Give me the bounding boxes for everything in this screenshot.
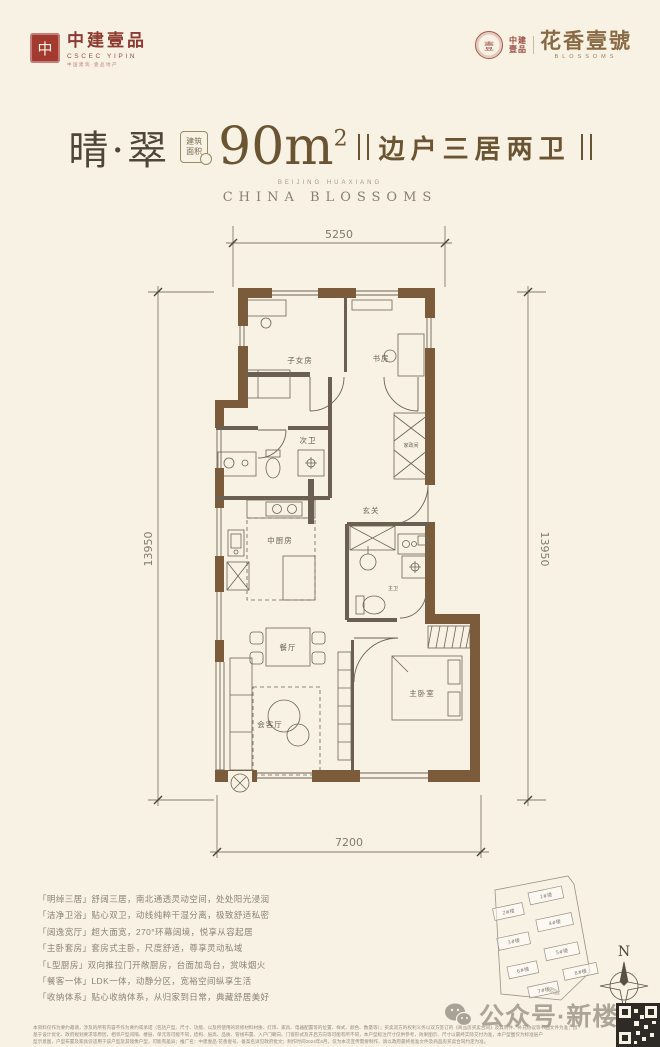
double-bar-icon (581, 134, 592, 160)
blossoms-logo: 壹 中建 壹品 花香壹號 BLOSSOMS (475, 30, 632, 60)
room-label-study: 书房 (373, 353, 390, 363)
right-brand-bottom: 壹品 (509, 45, 527, 54)
project-name-en: BLOSSOMS (540, 54, 632, 60)
dim-bottom: 7200 (335, 836, 363, 849)
dim-top: 5250 (325, 228, 353, 241)
room-label-kitchen: 中厨房 (267, 535, 293, 545)
north-label: N (618, 944, 630, 960)
room-label-bath2: 次卫 (300, 435, 317, 445)
site-buildings: 2#楼 1#楼 3#楼 4#楼 6#楼 5#楼 7#楼 8#楼 (489, 882, 600, 1002)
plan-windows (216, 291, 431, 778)
area-value: 90m (218, 117, 333, 177)
wechat-icon (443, 1000, 473, 1030)
room-label-master-bath: 主卫 (388, 585, 398, 592)
right-brand-top: 中建 (509, 36, 527, 45)
subtitle-small-en: BEIJING HUAXIANG (0, 180, 660, 186)
left-brand-sub: CSCEC YIPIN (67, 53, 147, 60)
plan-walls (215, 288, 480, 782)
watermark: 公众号·新楼市 (443, 997, 644, 1033)
red-seal-icon: 中 (30, 33, 60, 63)
room-label-children: 子女房 (287, 355, 313, 365)
feature-item: 「收纳体系」贴心收纳体系，从归家到日常，典藏舒居美好 (38, 989, 269, 1005)
left-brand-tagline: 中国建筑·壹品地产 (67, 62, 147, 68)
area-badge: 建筑 面积 (180, 131, 208, 163)
feature-item: 「明绰三居」舒阔三居，南北通透灵动空间，处处阳光浸润 (38, 891, 269, 907)
subtitle-en: CHINA BLOSSOMS (0, 190, 660, 205)
dim-right: 13950 (538, 532, 550, 567)
room-label-foyer: 玄关 (363, 505, 380, 515)
area-badge-top: 建筑 (186, 137, 202, 147)
dim-left: 13950 (142, 532, 155, 567)
seal-glyph: 壹 (484, 38, 494, 53)
area-sup: 2 (334, 127, 348, 152)
feature-item: 「餐客一体」LDK一体，动静分区，宽裕空间纵享生活 (38, 973, 269, 989)
unit-title-row: 晴·翠 建筑 面积 90m2 边户三居两卫 (0, 118, 660, 176)
left-brand-name: 中建壹品 (67, 33, 147, 50)
cscec-yipin-logo: 中 中建壹品 CSCEC YIPIN 中国建筑·壹品地产 (30, 33, 147, 68)
unit-area: 90m2 (218, 121, 347, 173)
badge-circle-icon (200, 153, 212, 165)
floor-plan: 子女房 书房 次卫 家政间 玄关 中厨房 餐厅 会客厅 主卫 主卧室 5250 (130, 218, 550, 878)
feature-item: 「L型厨房」双向推拉门开敞厨房，台面加岛台，赏味烟火 (38, 957, 269, 973)
poster-page: 中 中建壹品 CSCEC YIPIN 中国建筑·壹品地产 壹 中建 壹品 花香壹… (0, 0, 660, 1047)
site-plan: 2#楼 1#楼 3#楼 4#楼 6#楼 5#楼 7#楼 8#楼 (478, 860, 608, 1010)
qr-code (616, 1003, 660, 1047)
plan-doors (258, 377, 428, 682)
project-name: 花香壹號 (540, 30, 632, 51)
unit-tagline: 边户三居两卫 (379, 129, 571, 166)
feature-item: 「主卧套房」套房式主卧，尺度舒适，尊享灵动私域 (38, 940, 269, 956)
room-label-utility: 家政间 (403, 442, 418, 449)
room-label-living: 会客厅 (257, 719, 283, 729)
double-bar-icon (358, 134, 369, 160)
seal-glyph: 中 (37, 38, 52, 59)
disclaimer-line: 型示意图，户型布置及家具仅适用于该户型及其镜像户型，可能有差异；推广名：中建壹品… (33, 1038, 619, 1045)
feature-item: 「洁净卫浴」贴心双卫，动线纯粹干湿分离，极致舒适私密 (38, 907, 269, 923)
feature-item: 「阔逸宽厅」超大面宽，270°环幕阔境，悦享从容起居 (38, 924, 269, 940)
room-label-master: 主卧室 (409, 688, 435, 698)
unit-name: 晴·翠 (68, 118, 170, 176)
room-label-dining: 餐厅 (280, 643, 297, 652)
right-brand-stack: 中建 壹品 (509, 36, 534, 54)
round-seal-icon: 壹 (475, 31, 503, 59)
feature-list: 「明绰三居」舒阔三居，南北通透灵动空间，处处阳光浸润 「洁净卫浴」贴心双卫，动线… (38, 891, 269, 1006)
